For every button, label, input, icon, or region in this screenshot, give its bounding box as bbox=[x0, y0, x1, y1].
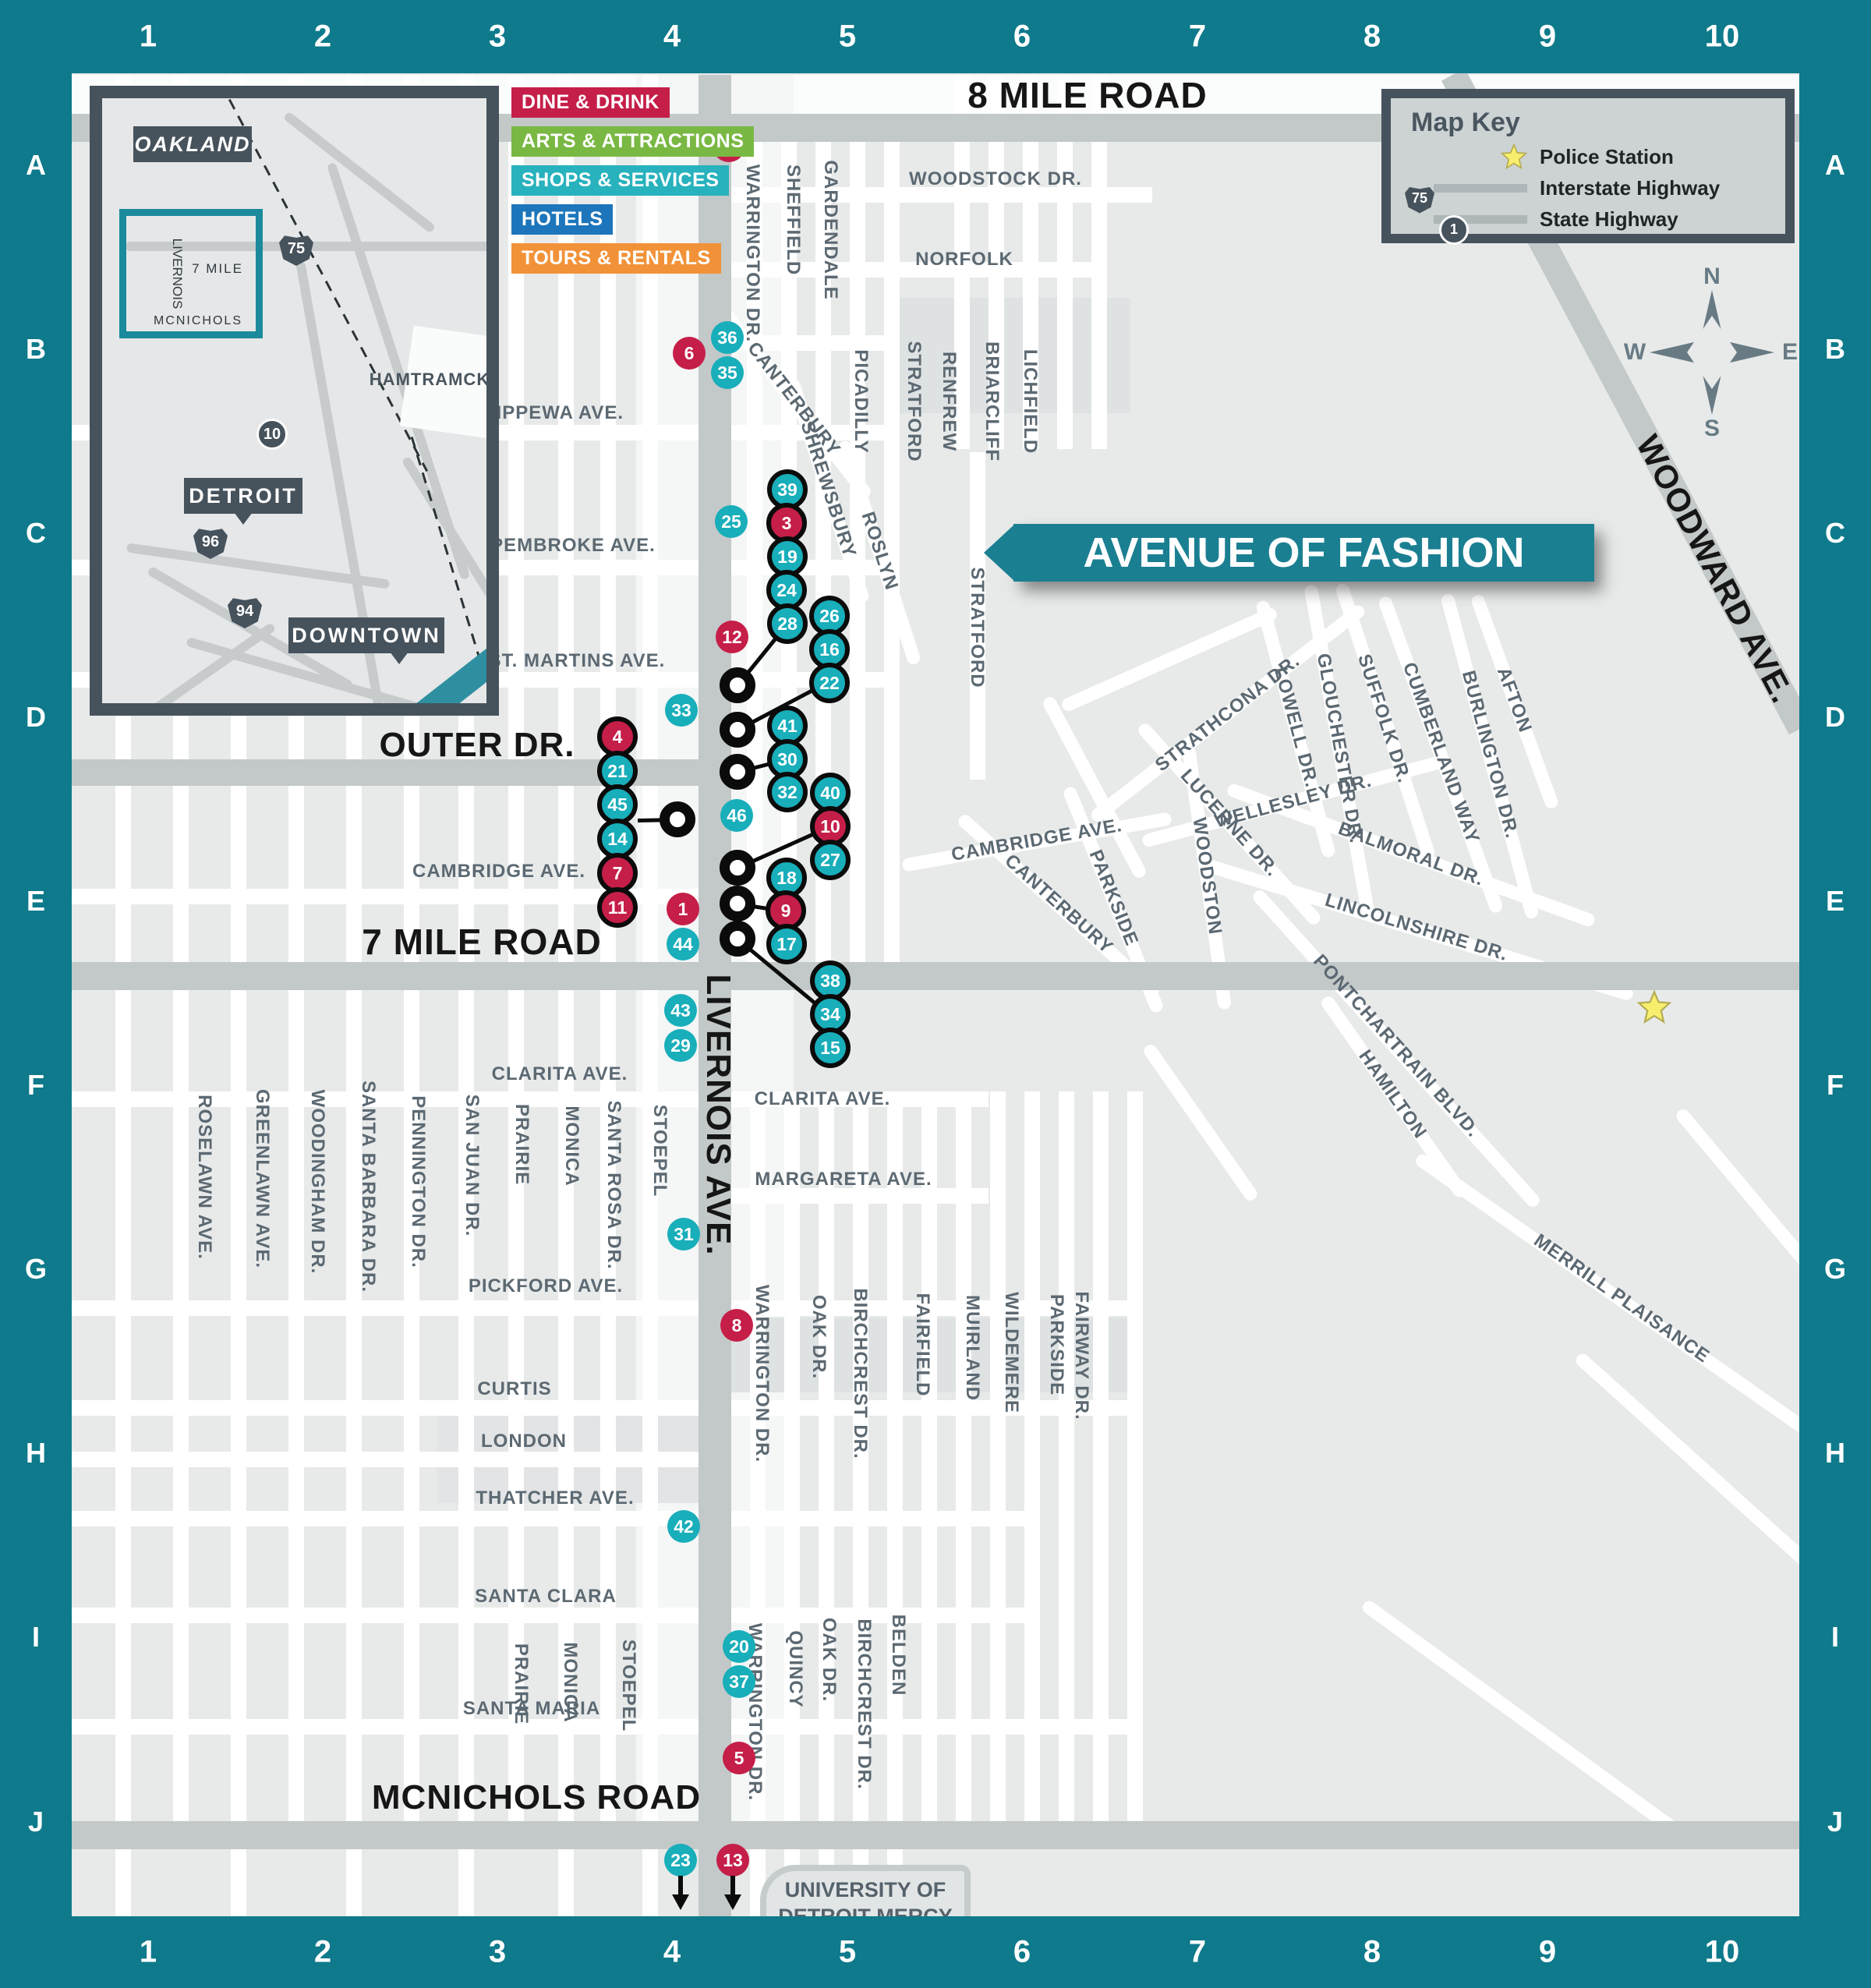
grid-column-7: 7 bbox=[1189, 1935, 1206, 1970]
avenue-of-fashion-map: ROSELAWN AVE.GREENLAWN AVE.WOODINGHAM DR… bbox=[0, 0, 1871, 1988]
grid-column-4: 4 bbox=[663, 19, 681, 55]
grid-row-H: H bbox=[1825, 1437, 1845, 1470]
grid-column-6: 6 bbox=[1013, 19, 1031, 55]
grid-column-2: 2 bbox=[314, 19, 331, 55]
street-label-pickford-ave: PICKFORD AVE. bbox=[469, 1275, 623, 1297]
police-station-star-icon bbox=[1637, 990, 1671, 1024]
street-label-briarcliff: BRIARCLIFF bbox=[981, 341, 1003, 462]
inset-downtown-label: DOWNTOWN bbox=[292, 624, 440, 648]
street-label-quincy: QUINCY bbox=[784, 1630, 806, 1707]
compass-e: E bbox=[1782, 339, 1798, 366]
inset-map: 75109694 OAKLAND LIVERNOIS 7 MILE MCNICH… bbox=[90, 86, 499, 716]
marker-31: 31 bbox=[667, 1218, 700, 1250]
street bbox=[1127, 1091, 1143, 1821]
marker-28: 28 bbox=[767, 603, 808, 644]
street bbox=[731, 1719, 1137, 1735]
inset-mcnichols-label: MCNICHOLS bbox=[154, 314, 242, 328]
banner-arrow-icon bbox=[984, 524, 1015, 582]
street-label-fairfield: FAIRFIELD bbox=[911, 1293, 933, 1397]
road-label-7-mile-road: 7 MILE ROAD bbox=[362, 921, 601, 963]
location-ring bbox=[720, 886, 755, 921]
grid-column-3: 3 bbox=[489, 19, 506, 55]
university-line1: UNIVERSITY OF bbox=[778, 1877, 953, 1904]
inset-detroit-pointer bbox=[234, 512, 253, 525]
grid-row-A: A bbox=[26, 149, 46, 182]
map-key-state-shield: 1 bbox=[1439, 215, 1469, 245]
marker-12: 12 bbox=[716, 621, 748, 653]
curved-street bbox=[1141, 1042, 1260, 1203]
street bbox=[72, 1300, 699, 1316]
street bbox=[72, 1400, 699, 1416]
category-legend: DINE & DRINKARTS & ATTRACTIONSSHOPS & SE… bbox=[511, 87, 754, 282]
street-label-pennington-dr: PENNINGTON DR. bbox=[407, 1095, 429, 1268]
legend-item-shops-services: SHOPS & SERVICES bbox=[511, 165, 729, 196]
grid-row-B: B bbox=[26, 333, 46, 366]
marker-36: 36 bbox=[711, 321, 744, 354]
inset-detroit-box: DETROIT bbox=[184, 478, 302, 514]
grid-row-I: I bbox=[32, 1621, 40, 1654]
map-key-title: Map Key bbox=[1411, 108, 1785, 138]
marker-33: 33 bbox=[665, 694, 698, 727]
compass-icon bbox=[1646, 286, 1778, 419]
compass-s: S bbox=[1704, 416, 1720, 442]
location-ring bbox=[660, 801, 695, 837]
street bbox=[1024, 1091, 1040, 1821]
grid-column-1: 1 bbox=[140, 19, 157, 55]
marker-11: 11 bbox=[597, 887, 638, 928]
street-label-wildemere: WILDEMERE bbox=[1000, 1292, 1022, 1413]
road-label-woodward-ave: WOODWARD AVE. bbox=[1629, 429, 1802, 709]
marker-15: 15 bbox=[810, 1028, 851, 1068]
street-label-belden: BELDEN bbox=[887, 1615, 909, 1696]
grid-row-C: C bbox=[1825, 517, 1845, 550]
street-label-cambridge-ave: CAMBRIDGE AVE. bbox=[412, 861, 585, 883]
street-label-pembroke-ave: PEMBROKE AVE. bbox=[490, 535, 656, 557]
street-label-fairway-dr: FAIRWAY DR. bbox=[1070, 1291, 1092, 1420]
street-label-santa-clara: SANTA CLARA bbox=[475, 1586, 617, 1608]
marker-37: 37 bbox=[723, 1665, 755, 1698]
street-label-norfolk: NORFOLK bbox=[915, 249, 1013, 271]
street-label-woodstock-dr: WOODSTOCK DR. bbox=[909, 168, 1082, 190]
road-label-8-mile-road: 8 MILE ROAD bbox=[967, 74, 1207, 116]
inset-seven-mile-label: 7 MILE bbox=[192, 261, 243, 277]
frame-bottom bbox=[0, 1916, 1871, 1988]
street-label-warrington-dr: WARRINGTON DR. bbox=[751, 1285, 773, 1463]
grid-column-10: 10 bbox=[1705, 1935, 1740, 1970]
frame-top bbox=[0, 0, 1871, 73]
marker-43: 43 bbox=[664, 994, 697, 1027]
street-label-sheffield: SHEFFIELD bbox=[782, 164, 804, 275]
street bbox=[642, 1849, 658, 1916]
street-label-clarita-ave: CLARITA AVE. bbox=[755, 1088, 891, 1110]
street bbox=[72, 1452, 699, 1467]
inset-oakland-label: OAKLAND bbox=[135, 133, 251, 157]
marker-arrow-stem bbox=[678, 1876, 683, 1894]
street-label-oak-dr: OAK DR. bbox=[818, 1618, 840, 1702]
marker-22: 22 bbox=[809, 663, 850, 703]
street-label-lowell-dr: LOWELL DR. bbox=[1269, 665, 1322, 791]
street bbox=[558, 1849, 574, 1916]
street bbox=[600, 75, 616, 1821]
street-label-clarita-ave: CLARITA AVE. bbox=[492, 1063, 628, 1085]
grid-row-E: E bbox=[1826, 885, 1844, 918]
street bbox=[642, 75, 658, 1821]
street bbox=[990, 1091, 1006, 1821]
grid-column-2: 2 bbox=[314, 1935, 331, 1970]
avenue-of-fashion-banner: AVENUE OF FASHION bbox=[1013, 524, 1594, 582]
curved-street bbox=[1360, 1598, 1696, 1847]
street bbox=[346, 1849, 362, 1916]
grid-row-H: H bbox=[26, 1437, 46, 1470]
compass-w: W bbox=[1624, 339, 1646, 366]
legend-item-dine-drink: DINE & DRINK bbox=[511, 87, 670, 118]
street bbox=[72, 1608, 699, 1623]
street-label-stoepel: STOEPEL bbox=[649, 1105, 670, 1197]
street bbox=[731, 1511, 1027, 1526]
map-key-items: Police Station75Interstate Highway1State… bbox=[1391, 141, 1785, 235]
major-road bbox=[72, 962, 1799, 990]
map-key-icon-slot: 75 bbox=[1391, 184, 1527, 193]
street bbox=[1093, 1091, 1109, 1821]
street-label-monica: MONICA bbox=[561, 1105, 582, 1186]
marker-20: 20 bbox=[723, 1630, 755, 1663]
grid-row-G: G bbox=[25, 1253, 47, 1286]
grid-row-J: J bbox=[1827, 1806, 1843, 1838]
street-label-santa-barbara-dr: SANTA BARBARA DR. bbox=[357, 1081, 379, 1293]
location-ring bbox=[720, 921, 755, 957]
marker-1: 1 bbox=[667, 893, 699, 925]
street-label-roselawn-ave: ROSELAWN AVE. bbox=[193, 1095, 215, 1260]
street bbox=[72, 1511, 699, 1526]
grid-column-8: 8 bbox=[1363, 1935, 1381, 1970]
inset-highway-shield-10: 10 bbox=[256, 419, 288, 450]
street bbox=[231, 1849, 246, 1916]
grid-column-3: 3 bbox=[489, 1935, 506, 1970]
street bbox=[458, 1849, 474, 1916]
street-label-lincolnshire-dr: LINCOLNSHIRE DR. bbox=[1322, 890, 1511, 966]
inset-detroit-label: DETROIT bbox=[189, 484, 298, 508]
grid-row-B: B bbox=[1825, 333, 1845, 366]
grid-row-I: I bbox=[1831, 1621, 1839, 1654]
compass-rose: N S W E bbox=[1646, 286, 1778, 419]
street bbox=[731, 1188, 989, 1204]
marker-27: 27 bbox=[810, 840, 851, 880]
map-key-road-sample bbox=[1434, 184, 1527, 193]
marker-6: 6 bbox=[673, 337, 706, 370]
grid-row-D: D bbox=[1825, 701, 1845, 734]
street bbox=[1059, 1091, 1074, 1821]
curved-street bbox=[1573, 1351, 1825, 1580]
grid-column-5: 5 bbox=[839, 1935, 856, 1970]
street-label-st-martins-ave: ST. MARTINS AVE. bbox=[489, 650, 666, 672]
marker-44: 44 bbox=[667, 928, 699, 960]
inset-downtown-box: DOWNTOWN bbox=[288, 617, 444, 653]
inset-hamtramck-label: HAMTRAMCK bbox=[370, 370, 490, 390]
grid-column-7: 7 bbox=[1189, 19, 1206, 55]
grid-column-10: 10 bbox=[1705, 19, 1740, 55]
street-label-london: LONDON bbox=[481, 1431, 567, 1452]
street-label-lichfield: LICHFIELD bbox=[1019, 349, 1041, 454]
street-label-curtis: CURTIS bbox=[477, 1378, 551, 1400]
grid-row-E: E bbox=[27, 885, 45, 918]
grid-column-5: 5 bbox=[839, 19, 856, 55]
inset-road bbox=[283, 111, 437, 233]
grid-row-F: F bbox=[1827, 1069, 1844, 1102]
marker-8: 8 bbox=[720, 1309, 753, 1342]
marker-5: 5 bbox=[723, 1742, 755, 1774]
map-key-row-state-highway: 1State Highway bbox=[1391, 203, 1785, 235]
street-label-margareta-ave: MARGARETA AVE. bbox=[755, 1169, 932, 1190]
location-ring bbox=[720, 850, 755, 886]
grid-row-A: A bbox=[1825, 149, 1845, 182]
legend-item-hotels: HOTELS bbox=[511, 204, 613, 235]
major-road bbox=[72, 1821, 1799, 1849]
grid-column-4: 4 bbox=[663, 1935, 681, 1970]
street-label-muirland: MUIRLAND bbox=[961, 1295, 983, 1401]
marker-17: 17 bbox=[766, 924, 807, 964]
inset-livernois-label: LIVERNOIS bbox=[169, 239, 185, 310]
street-label-merrill-plaisance: MERRILL PLAISANCE bbox=[1530, 1230, 1714, 1368]
marker-arrow-icon bbox=[672, 1894, 689, 1910]
road-label-outer-dr: OUTER DR. bbox=[380, 726, 575, 765]
marker-35: 35 bbox=[711, 356, 744, 389]
legend-item-tours-rentals: TOURS & RENTALS bbox=[511, 243, 721, 274]
street-label-oak-dr: OAK DR. bbox=[808, 1295, 829, 1379]
map-key-label: Police Station bbox=[1540, 145, 1674, 169]
marker-arrow-stem bbox=[730, 1876, 735, 1894]
map-key-label: Interstate Highway bbox=[1540, 176, 1720, 200]
street-label-parkside: PARKSIDE bbox=[1045, 1294, 1067, 1395]
street bbox=[731, 560, 887, 575]
street-label-santa-rosa-dr: SANTA ROSA DR. bbox=[603, 1100, 624, 1269]
street-label-gardendale: GARDENDALE bbox=[819, 160, 841, 299]
grid-column-9: 9 bbox=[1539, 1935, 1556, 1970]
street-label-renfrew: RENFREW bbox=[938, 352, 960, 451]
inset-highway-shield-75: 75 bbox=[279, 232, 313, 266]
location-ring bbox=[720, 754, 755, 790]
grid-row-C: C bbox=[26, 517, 46, 550]
location-ring bbox=[720, 667, 755, 703]
street-label-stratford: STRATFORD bbox=[903, 341, 925, 462]
inset-oakland-box: OAKLAND bbox=[133, 126, 252, 162]
street bbox=[72, 1719, 699, 1735]
location-ring bbox=[720, 712, 755, 748]
marker-29: 29 bbox=[664, 1029, 697, 1062]
map-key-row-interstate-highway: 75Interstate Highway bbox=[1391, 172, 1785, 203]
grid-column-9: 9 bbox=[1539, 19, 1556, 55]
grid-row-J: J bbox=[28, 1806, 44, 1838]
grid-row-F: F bbox=[27, 1069, 44, 1102]
compass-n: N bbox=[1703, 264, 1721, 290]
street-label-picadilly: PICADILLY bbox=[850, 349, 872, 453]
map-key-icon-slot bbox=[1391, 143, 1527, 170]
grid-row-D: D bbox=[26, 701, 46, 734]
street-label-stoepel: STOEPEL bbox=[617, 1640, 639, 1732]
street-label-prairie: PRAIRIE bbox=[511, 1104, 532, 1185]
street bbox=[115, 1849, 131, 1916]
street-label-afton: AFTON bbox=[1492, 664, 1536, 736]
street-label-san-juan-dr: SAN JUAN DR. bbox=[461, 1095, 483, 1237]
marker-13: 13 bbox=[716, 1844, 749, 1877]
marker-42: 42 bbox=[667, 1510, 700, 1543]
marker-23: 23 bbox=[664, 1844, 697, 1877]
map-key: Map Key Police Station75Interstate Highw… bbox=[1381, 89, 1795, 243]
street-label-thatcher-ave: THATCHER AVE. bbox=[476, 1487, 634, 1509]
grid-column-1: 1 bbox=[140, 1935, 157, 1970]
grid-row-G: G bbox=[1824, 1253, 1846, 1286]
street bbox=[731, 1608, 1027, 1623]
marker-32: 32 bbox=[767, 772, 808, 812]
police-station-icon bbox=[1501, 143, 1527, 170]
banner-label: AVENUE OF FASHION bbox=[1083, 529, 1524, 577]
map-key-row-police-station: Police Station bbox=[1391, 141, 1785, 172]
street-label-greenlawn-ave: GREENLAWN AVE. bbox=[251, 1089, 273, 1268]
street-label-stratford: STRATFORD bbox=[966, 567, 988, 688]
map-key-icon-slot: 1 bbox=[1391, 215, 1527, 224]
road-label-mcnichols-road: MCNICHOLS ROAD bbox=[372, 1778, 701, 1817]
map-key-label: State Highway bbox=[1540, 207, 1678, 232]
street-label-santa-maria: SANTA MARIA bbox=[463, 1698, 600, 1720]
grid-column-6: 6 bbox=[1013, 1935, 1031, 1970]
grid-column-8: 8 bbox=[1363, 19, 1381, 55]
marker-25: 25 bbox=[715, 505, 748, 538]
street-label-woodingham-dr: WOODINGHAM DR. bbox=[306, 1090, 328, 1275]
inset-road bbox=[130, 622, 276, 716]
street-label-birchcrest-dr: BIRCHCREST DR. bbox=[853, 1618, 875, 1789]
inset-downtown-pointer bbox=[390, 652, 409, 664]
street-label-birchcrest-dr: BIRCHCREST DR. bbox=[849, 1288, 871, 1459]
marker-arrow-icon bbox=[724, 1894, 741, 1910]
legend-item-arts-attractions: ARTS & ATTRACTIONS bbox=[511, 126, 754, 157]
road-label-livernois-ave: LIVERNOIS AVE. bbox=[699, 974, 737, 1255]
marker-46: 46 bbox=[720, 799, 753, 832]
